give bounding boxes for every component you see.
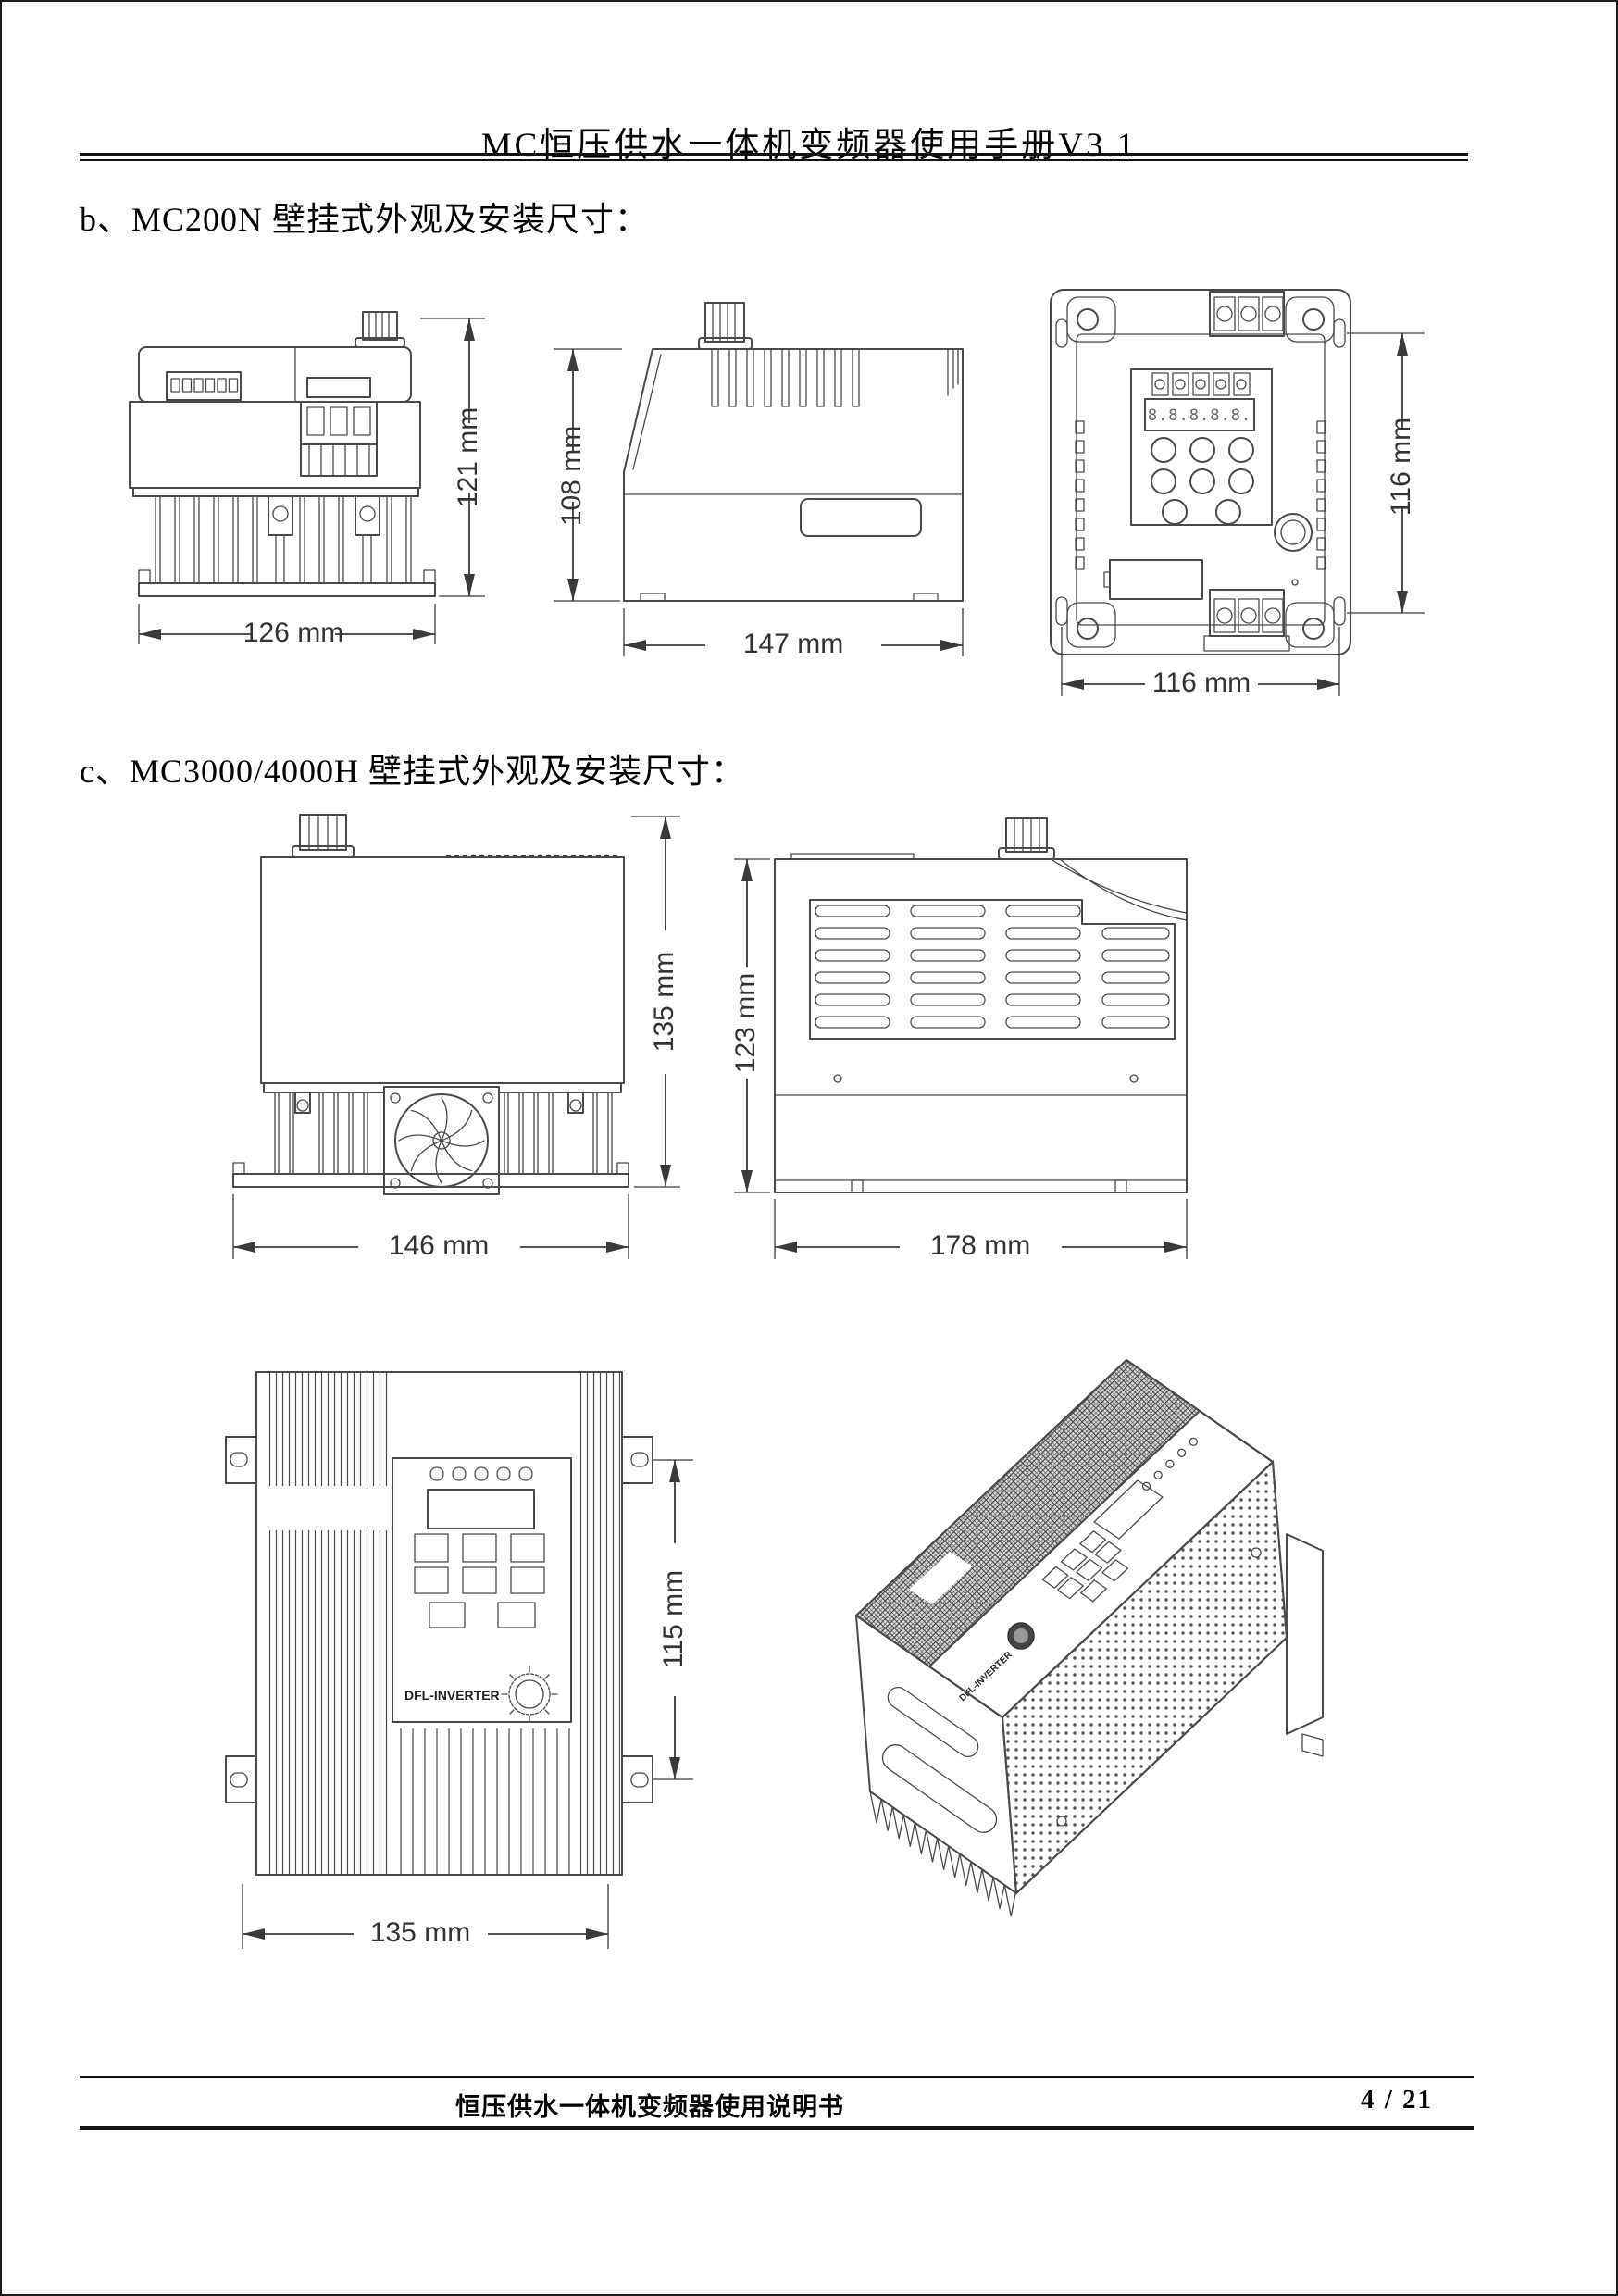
drawing-mc3000-isometric-view: DFL-INVERTER (856, 1360, 1323, 1916)
dim-label-mc200n-side-height: 108 mm (556, 426, 587, 526)
dim-label-mc3000-front-width: 146 mm (389, 1230, 489, 1261)
footer-rule-bottom (80, 2126, 1474, 2130)
dim-label-mc200n-back-width: 116 mm (1152, 668, 1251, 698)
dim-label-mc3000-side-width: 178 mm (930, 1230, 1030, 1261)
drawing-mc200n-back-view: 8.8.8.8.8. 116 mm (1051, 290, 1425, 698)
dim-label-mc3000-panel-height: 115 mm (658, 1570, 689, 1668)
drawing-mc200n-side-view: 108 mm 147 mm (554, 303, 963, 659)
drawing-mc200n-front-view: 121 mm 126 mm (130, 312, 485, 648)
dim-label-mc200n-side-width: 147 mm (743, 629, 843, 659)
drawing-mc3000-side-view: 123 mm 178 mm (730, 818, 1187, 1261)
footer-rule-top (80, 2076, 1474, 2078)
footer-page-number: 4 / 21 (1361, 2085, 1433, 2115)
dim-label-mc200n-height: 121 mm (453, 407, 483, 507)
manual-page: MC恒压供水一体机变频器使用手册V3.1 b、MC200N 壁挂式外观及安装尺寸… (0, 0, 1618, 2296)
brand-label: DFL-INVERTER (404, 1688, 500, 1703)
dim-label-mc200n-back-height: 116 mm (1386, 418, 1416, 516)
dim-label-mc3000-side-height: 123 mm (730, 973, 761, 1073)
dim-label-mc200n-width: 126 mm (243, 618, 343, 648)
dim-label-mc3000-panel-width: 135 mm (370, 1917, 470, 1948)
technical-drawings: 121 mm 126 mm (2, 2, 1618, 2296)
drawing-mc3000-front-view: 135 mm 146 mm (233, 815, 680, 1261)
drawing-mc3000-panel-view: DFL-INVERTER 115 mm 135 mm (226, 1372, 693, 1949)
footer-doc-title: 恒压供水一体机变频器使用说明书 (455, 2087, 844, 2123)
dim-label-mc3000-front-height: 135 mm (649, 952, 679, 1052)
seven-segment-display: 8.8.8.8.8. (1148, 406, 1251, 425)
